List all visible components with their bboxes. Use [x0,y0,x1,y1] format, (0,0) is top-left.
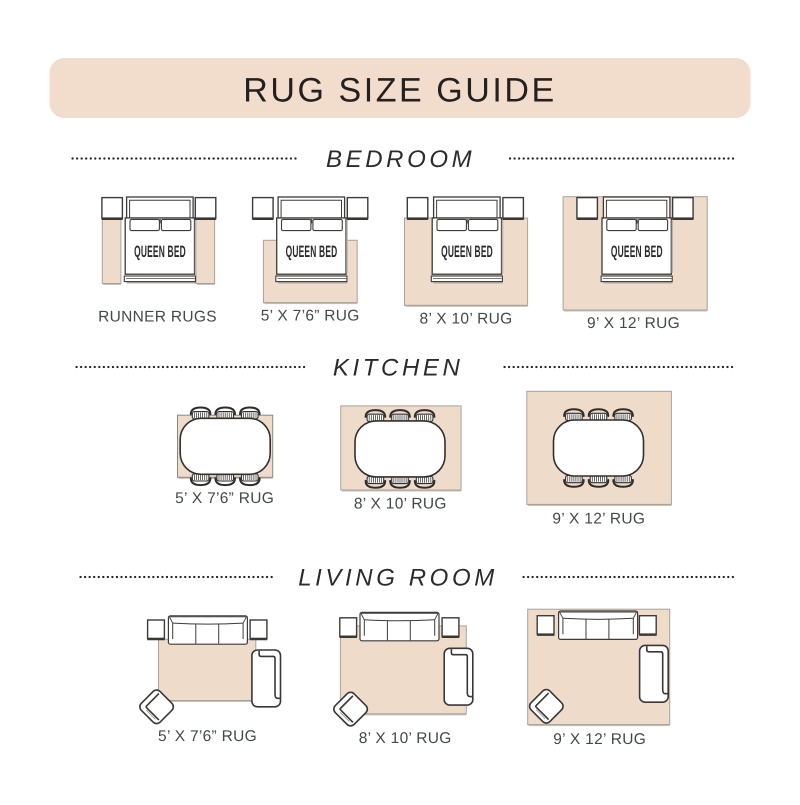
svg-text:9’ X 12’ RUG: 9’ X 12’ RUG [553,731,646,748]
svg-text:RUNNER RUGS: RUNNER RUGS [98,308,217,325]
svg-text:5’ X 7’6” RUG: 5’ X 7’6” RUG [261,307,360,324]
svg-text:5’ X 7’6” RUG: 5’ X 7’6” RUG [158,728,257,745]
svg-text:KITCHEN: KITCHEN [333,355,464,382]
svg-text:5’ X 7’6” RUG: 5’ X 7’6” RUG [175,490,274,507]
svg-text:BEDROOM: BEDROOM [326,146,475,173]
svg-text:8’ X 10’ RUG: 8’ X 10’ RUG [354,495,447,512]
svg-text:LIVING ROOM: LIVING ROOM [298,565,498,592]
svg-text:RUG SIZE GUIDE: RUG SIZE GUIDE [243,72,556,110]
svg-text:9’ X 12’ RUG: 9’ X 12’ RUG [552,510,645,527]
svg-text:9’ X 12’ RUG: 9’ X 12’ RUG [587,315,680,332]
svg-text:8’ X 10’ RUG: 8’ X 10’ RUG [420,310,513,327]
svg-text:8’ X 10’ RUG: 8’ X 10’ RUG [359,730,452,747]
